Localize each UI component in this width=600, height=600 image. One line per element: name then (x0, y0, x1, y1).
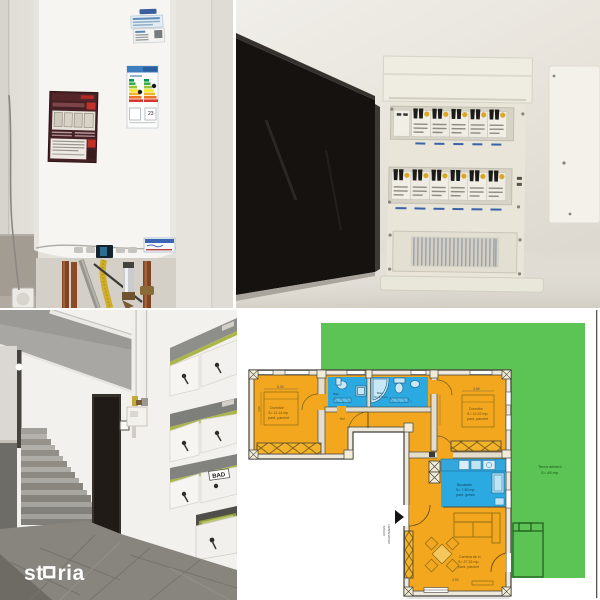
svg-text:S= 7.60 mp: S= 7.60 mp (456, 488, 474, 492)
svg-text:S= 5.9 mp: S= 5.9 mp (374, 395, 388, 399)
svg-text:4.60: 4.60 (257, 406, 261, 412)
svg-text:st: st (24, 562, 44, 585)
svg-text:Dormitor: Dormitor (469, 407, 484, 411)
svg-text:APARTAMENT: APARTAMENT (387, 524, 391, 544)
svg-text:Camera de zi: Camera de zi (459, 555, 481, 559)
svg-text:Bucatarie: Bucatarie (457, 483, 472, 487)
svg-text:4.90: 4.90 (452, 578, 459, 582)
svg-text:3.55: 3.55 (473, 387, 480, 391)
svg-text:Dormitor: Dormitor (270, 406, 285, 410)
svg-text:S= 11.14 mp: S= 11.14 mp (268, 411, 288, 415)
svg-text:pard. parchet: pard. parchet (268, 416, 289, 420)
svg-text:Hol: Hol (340, 417, 345, 421)
svg-text:ACCES: ACCES (382, 526, 386, 536)
svg-text:pard. parchet: pard. parchet (458, 565, 479, 569)
svg-text:S= 12.22 mp: S= 12.22 mp (467, 412, 487, 416)
svg-text:pard. gresie: pard. gresie (456, 493, 475, 497)
svg-text:23: 23 (148, 111, 154, 117)
svg-text:S= 48 mp: S= 48 mp (541, 470, 559, 475)
svg-text:Teren aferent: Teren aferent (538, 464, 562, 469)
svg-text:ria: ria (58, 562, 85, 585)
svg-text:Baie: Baie (333, 392, 339, 396)
svg-text:5.30: 5.30 (277, 385, 284, 389)
svg-text:S= 27.32 mp: S= 27.32 mp (458, 560, 478, 564)
svg-text:pard. parchet: pard. parchet (467, 417, 488, 421)
